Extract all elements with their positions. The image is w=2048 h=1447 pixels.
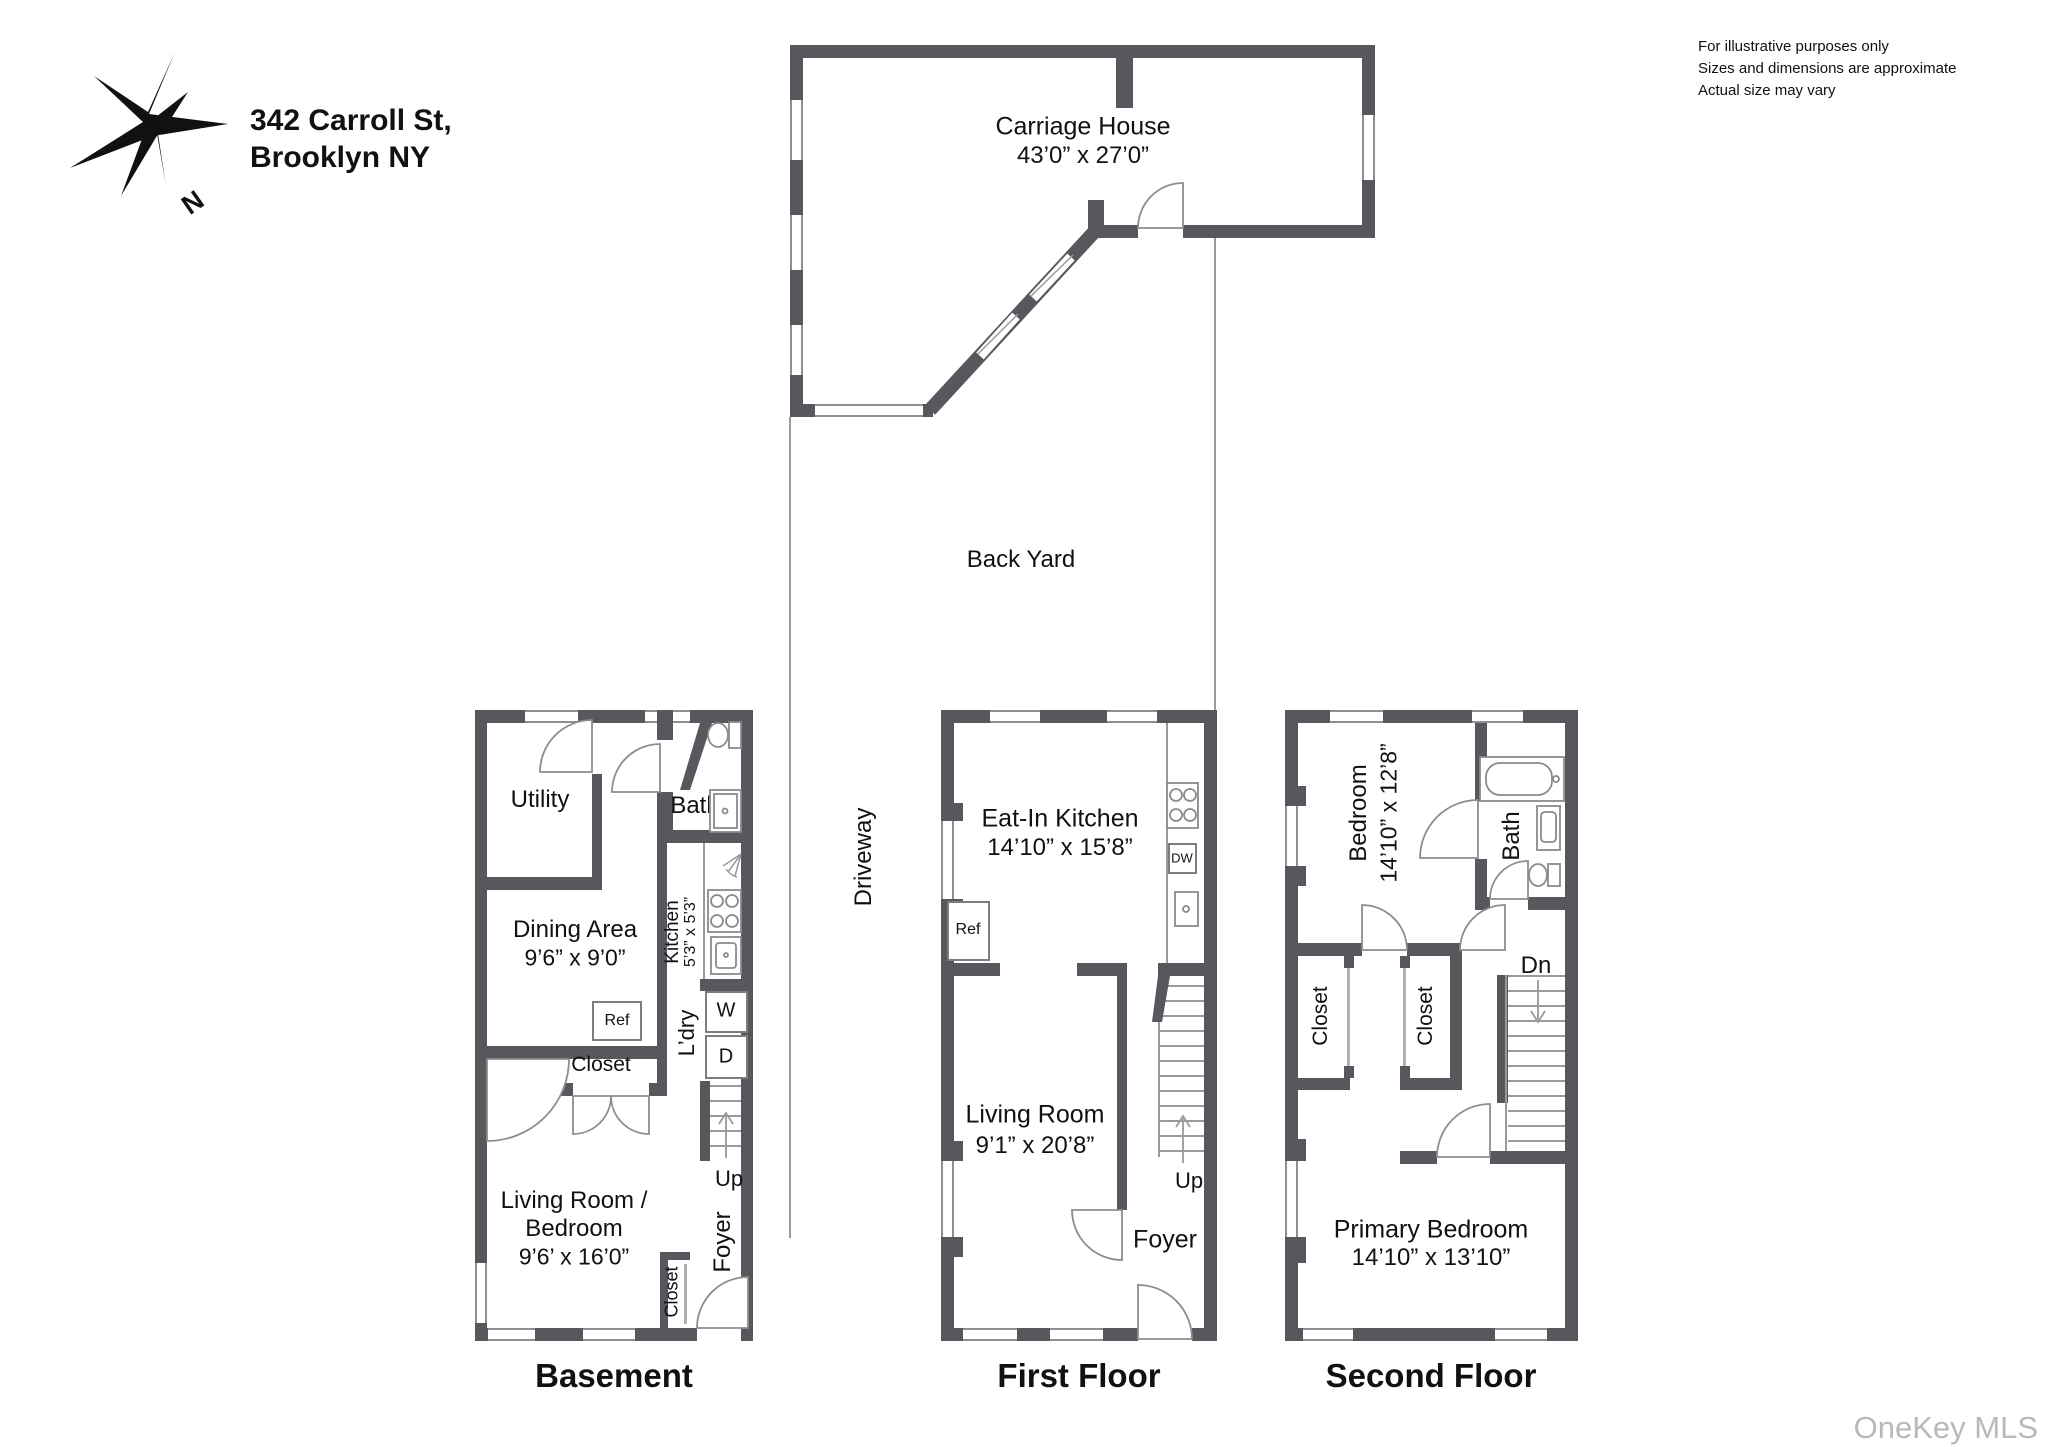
second-floor-hall-wall [1298,943,1362,956]
second-floor-closet1-stub [1344,1066,1354,1078]
carriage-house-window [790,325,803,375]
disclaimer-line3: Actual size may vary [1698,80,1956,102]
second-floor-closet2-stub [1400,1066,1410,1078]
second-floor-window [1285,1161,1298,1237]
basement-closet-bottom-wall [545,1083,573,1096]
basement-dryer-label: D [719,1046,733,1069]
basement-dining-dims: 9’6” x 9’0” [525,945,626,972]
basement-bath-label: Bath [670,792,719,820]
first-floor-ref-label: Ref [956,921,981,939]
second-floor-window [1495,1328,1547,1341]
first-floor-dw-label: DW [1171,851,1193,866]
carriage-house-door-swing [1138,183,1183,228]
basement-bottom-closet-top-wall [660,1252,690,1260]
carriage-house-top-wall [790,45,1375,58]
second-floor-primary-dims: 14’10” x 13’10” [1352,1244,1511,1272]
second-floor-closet-right-label: Closet [1414,986,1438,1046]
basement-toilet-tank [729,722,741,748]
basement-stove [708,890,741,932]
second-floor-closet1-bottom-wall [1298,1078,1350,1090]
fixtures [708,722,1564,974]
second-floor-primary-door-swing [1437,1104,1490,1157]
second-floor-title: Second Floor [1326,1357,1537,1395]
second-floor-closet2-right-wall [1450,943,1462,1090]
carriage-house-window [790,215,803,270]
basement-bath-bottom-wall [657,830,741,843]
first-floor-living-dims: 9’1” x 20’8” [976,1132,1095,1160]
basement-kitchen-label: Kitchen [662,900,684,963]
second-floor-toilet-tank [1548,864,1560,886]
second-floor-bath-bottom-wall [1528,897,1578,910]
basement-window [583,1328,635,1341]
first-floor-bottom-wall-corner [1192,1328,1217,1341]
second-floor-window-nub [1285,1139,1306,1161]
carriage-house-dims: 43’0” x 27’0” [1017,142,1149,170]
second-floor-closet1-stub [1344,956,1354,968]
carriage-house-diagonal-wall [930,230,1096,410]
second-floor-stairs [1508,975,1565,1155]
first-floor-living-label: Living Room [966,1101,1105,1130]
disclaimer: For illustrative purposes only Sizes and… [1698,36,1956,102]
basement-closet-bottom-wall [649,1083,667,1096]
watermark: OneKey MLS [1854,1410,2038,1446]
basement-living-label1: Living Room / [501,1187,648,1215]
basement-stair-wall [700,1081,710,1161]
driveway-label: Driveway [850,808,878,907]
carriage-house-window [815,404,923,417]
first-floor-up-label: Up [1175,1168,1203,1194]
basement-title: Basement [535,1357,693,1395]
first-floor-sink [1175,892,1198,926]
second-floor-stairhall-wall [1490,1151,1578,1164]
second-floor-window-nub [1285,786,1306,806]
basement-closet-label: Closet [571,1053,631,1077]
door-swings [487,183,1528,1339]
second-floor-window-nub [1285,866,1306,886]
basement-stairs [710,1085,741,1158]
basement-bottom-closet-door [684,1264,687,1324]
basement-closet-door-swing-right [611,1096,649,1134]
first-floor-window [990,710,1040,723]
yard-boundary-left [789,417,791,1238]
first-floor-stove [1167,783,1198,828]
first-floor-kitchen-dims: 14’10” x 15’8” [987,834,1132,862]
basement-utility-right-wall [592,710,602,722]
basement-toilet-bowl [708,723,728,747]
compass-rose-icon [70,52,228,196]
basement-utility-right-wall [592,774,602,877]
first-floor-window-nub [941,803,963,821]
yard-boundary-right [1214,238,1216,712]
first-floor-window [941,821,954,899]
second-floor-closet1-door [1347,968,1350,1066]
second-floor-bath-label: Bath [1498,811,1526,860]
basement-bottom-closet-label: Closet [662,1266,683,1317]
second-floor-sink [1537,806,1560,850]
first-floor-kitchen-label: Eat-In Kitchen [981,805,1138,834]
second-floor-closet2-stub [1400,956,1410,968]
basement-window [488,1328,535,1341]
second-floor-tub [1480,757,1564,801]
basement-sink [711,937,741,974]
carriage-house-bottom-wall-right-of-door [1183,225,1375,238]
basement-living-label2: Bedroom [525,1215,622,1243]
first-floor-window-nub [941,1141,963,1161]
second-floor-hall-door-swing-b [1460,905,1505,950]
basement-dining-label: Dining Area [513,916,637,944]
basement-kitchen-counter-line [703,843,705,979]
disclaimer-line2: Sizes and dimensions are approximate [1698,58,1956,80]
basement-closet-door-swing-left [573,1096,611,1134]
second-floor-bath-door-swing [1490,861,1528,899]
basement-utility-bottom-wall [487,877,602,890]
address-line1: 342 Carroll St, [250,102,452,139]
plan-linework [0,0,2048,1447]
second-floor-bath-bottom-wall [1475,897,1490,910]
carriage-house-window [790,100,803,160]
basement-kitchen-dims: 5’3” x 5’3” [682,897,700,967]
second-floor-toilet-bowl [1529,864,1547,886]
basement-bath-left-wall [657,710,673,740]
basement-ref-label: Ref [605,1012,630,1030]
compass-north-label: N [176,185,210,222]
second-floor-hall-door-swing-a [1362,905,1407,950]
second-floor-stairhall-wall [1400,1151,1437,1164]
second-floor-bath-left-wall [1475,723,1487,801]
second-floor-closet2-door [1403,968,1406,1066]
second-floor-bedroom-dims: 14’10” x 12’8” [1376,743,1403,882]
first-floor-divider-wall [941,963,1000,976]
first-floor-right-wall [1204,710,1217,1341]
basement-utility-door-swing [540,720,592,772]
second-floor-bedroom-door-swing [1420,800,1478,858]
second-floor-window [1472,710,1523,723]
first-floor-window [963,1328,1017,1341]
first-floor-stair-stringer [1158,985,1160,1157]
first-floor-window [941,1161,954,1237]
basement-up-label: Up [715,1166,743,1192]
basement-bath-door-swing [612,744,660,792]
address: 342 Carroll St, Brooklyn NY [250,102,452,176]
basement-bath-angled-wall [680,723,712,790]
second-floor-stair-stringer [1505,975,1507,1155]
second-floor-top-wall [1285,710,1578,723]
second-floor-bedroom-label: Bedroom [1345,764,1373,861]
second-floor-window [1330,710,1383,723]
second-floor-closet-left-label: Closet [1309,986,1333,1046]
basement-bottom-wall-corner [748,1328,753,1341]
basement-window [475,1263,487,1323]
floor-plan-page: 342 Carroll St, Brooklyn NY For illustra… [0,0,2048,1447]
first-floor-living-door-swing [1072,1210,1122,1260]
first-floor-divider-wall [1158,963,1217,976]
basement-foyer-label: Foyer [709,1211,737,1272]
basement-laundry-top-wall [700,979,753,991]
first-floor-window [1107,710,1157,723]
basement-living-dims: 9’6’ x 16’0” [519,1244,629,1271]
address-line2: Brooklyn NY [250,139,452,176]
first-floor-window-nub [941,1237,963,1257]
basement-window [525,710,578,723]
disclaimer-line1: For illustrative purposes only [1698,36,1956,58]
first-floor-title: First Floor [997,1357,1160,1395]
back-yard-label: Back Yard [967,546,1076,574]
first-floor-top-wall [941,710,1217,723]
basement-washer-label: W [717,1000,736,1023]
second-floor-right-wall [1565,710,1578,1341]
second-floor-closet2-bottom-wall [1400,1078,1462,1090]
basement-laundry-label: L’dry [674,1010,700,1056]
first-floor-entry-door-swing [1138,1285,1192,1339]
first-floor-foyer-label: Foyer [1133,1226,1197,1255]
carriage-house-label: Carriage House [995,113,1170,142]
basement-utility-label: Utility [511,786,570,814]
basement-left-wall [475,710,487,1341]
second-floor-dn-label: Dn [1521,952,1552,980]
second-floor-window [1303,1328,1353,1341]
basement-top-wall [475,710,753,723]
carriage-house-window [1362,115,1375,180]
first-floor-stairs [1160,985,1204,1157]
carriage-house-top-stub-wall [1116,58,1133,108]
second-floor-primary-label: Primary Bedroom [1334,1216,1529,1245]
second-floor-window [1285,806,1298,866]
second-floor-window-nub [1285,1237,1306,1263]
carriage-house-corner-nub [1088,200,1104,238]
first-floor-window [1050,1328,1103,1341]
first-floor-foyer-wall [1117,963,1127,1210]
basement-divider-wall [487,1046,545,1059]
